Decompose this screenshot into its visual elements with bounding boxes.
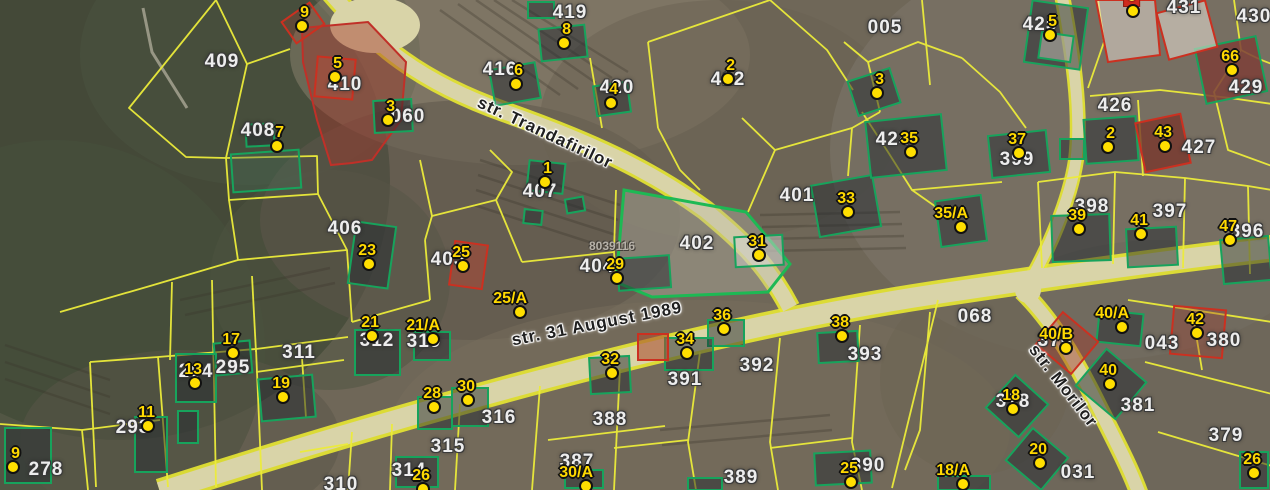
parcel-number-label: 409 xyxy=(205,51,240,73)
marker-dot-icon[interactable] xyxy=(904,145,918,159)
marker-dot-icon[interactable] xyxy=(835,329,849,343)
labels-layer: 4094194164204120054100604084074064054044… xyxy=(0,0,1270,490)
marker-dot-icon[interactable] xyxy=(680,346,694,360)
marker-dot-icon[interactable] xyxy=(328,70,342,84)
marker-dot-icon[interactable] xyxy=(721,72,735,86)
parcel-number-label: 278 xyxy=(29,459,64,481)
parcel-number-label: 388 xyxy=(593,409,628,431)
marker-dot-icon[interactable] xyxy=(226,346,240,360)
marker-dot-icon[interactable] xyxy=(1223,233,1237,247)
parcel-number-label: 426 xyxy=(1098,95,1133,117)
marker-dot-icon[interactable] xyxy=(1190,326,1204,340)
marker-dot-icon[interactable] xyxy=(381,113,395,127)
marker-dot-icon[interactable] xyxy=(141,419,155,433)
marker-dot-icon[interactable] xyxy=(188,376,202,390)
parcel-number-label: 060 xyxy=(391,106,426,128)
marker-dot-icon[interactable] xyxy=(841,205,855,219)
parcel-number-label: 401 xyxy=(780,185,815,207)
marker-dot-icon[interactable] xyxy=(954,220,968,234)
parcel-number-label: 043 xyxy=(1145,333,1180,355)
parcel-number-label: 431 xyxy=(1167,0,1202,19)
marker-dot-icon[interactable] xyxy=(557,36,571,50)
marker-dot-icon[interactable] xyxy=(1101,140,1115,154)
marker-dot-icon[interactable] xyxy=(1126,4,1140,18)
parcel-number-label: 429 xyxy=(1229,77,1264,99)
parcel-number-label: 315 xyxy=(431,436,466,458)
parcel-number-label: 393 xyxy=(848,344,883,366)
marker-dot-icon[interactable] xyxy=(270,139,284,153)
parcel-number-label: 402 xyxy=(680,233,715,255)
marker-dot-icon[interactable] xyxy=(1103,377,1117,391)
marker-dot-icon[interactable] xyxy=(1247,466,1261,480)
marker-dot-icon[interactable] xyxy=(461,393,475,407)
marker-dot-icon[interactable] xyxy=(1033,456,1047,470)
marker-dot-icon[interactable] xyxy=(509,77,523,91)
marker-dot-icon[interactable] xyxy=(579,479,593,490)
marker-dot-icon[interactable] xyxy=(513,305,527,319)
marker-dot-icon[interactable] xyxy=(426,332,440,346)
parcel-number-label: 381 xyxy=(1121,395,1156,417)
marker-dot-icon[interactable] xyxy=(1225,63,1239,77)
marker-dot-icon[interactable] xyxy=(870,86,884,100)
marker-dot-icon[interactable] xyxy=(1115,320,1129,334)
marker-dot-icon[interactable] xyxy=(365,329,379,343)
survey-number-label: 8039116 xyxy=(589,239,635,253)
marker-dot-icon[interactable] xyxy=(6,460,20,474)
marker-dot-icon[interactable] xyxy=(1043,28,1057,42)
marker-dot-icon[interactable] xyxy=(1134,227,1148,241)
marker-dot-icon[interactable] xyxy=(1072,222,1086,236)
marker-dot-icon[interactable] xyxy=(1059,341,1073,355)
marker-dot-icon[interactable] xyxy=(1158,139,1172,153)
parcel-number-label: 392 xyxy=(740,355,775,377)
parcel-number-label: 379 xyxy=(1209,425,1244,447)
marker-dot-icon[interactable] xyxy=(538,175,552,189)
parcel-number-label: 389 xyxy=(724,467,759,489)
parcel-number-label: 311 xyxy=(282,342,316,364)
street-name-label: str. 31 August 1989 xyxy=(510,298,684,351)
marker-dot-icon[interactable] xyxy=(1006,402,1020,416)
marker-dot-icon[interactable] xyxy=(844,475,858,489)
marker-dot-icon[interactable] xyxy=(362,257,376,271)
parcel-number-label: 397 xyxy=(1153,201,1188,223)
marker-dot-icon[interactable] xyxy=(276,390,290,404)
parcel-number-label: 408 xyxy=(241,120,276,142)
parcel-number-label: 295 xyxy=(216,357,251,379)
marker-dot-icon[interactable] xyxy=(605,366,619,380)
parcel-number-label: 005 xyxy=(868,17,903,39)
marker-dot-icon[interactable] xyxy=(1012,146,1026,160)
parcel-number-label: 031 xyxy=(1061,462,1096,484)
parcel-number-label: 380 xyxy=(1207,330,1242,352)
parcel-number-label: 310 xyxy=(324,474,359,490)
marker-dot-icon[interactable] xyxy=(416,482,430,490)
map-canvas[interactable]: 4094194164204120054100604084074064054044… xyxy=(0,0,1270,490)
marker-dot-icon[interactable] xyxy=(604,96,618,110)
parcel-number-label: 391 xyxy=(668,369,703,391)
marker-dot-icon[interactable] xyxy=(295,19,309,33)
marker-dot-icon[interactable] xyxy=(427,400,441,414)
parcel-number-label: 406 xyxy=(328,218,363,240)
marker-dot-icon[interactable] xyxy=(956,477,970,490)
marker-dot-icon[interactable] xyxy=(456,259,470,273)
parcel-number-label: 316 xyxy=(482,407,517,429)
marker-dot-icon[interactable] xyxy=(610,271,624,285)
marker-dot-icon[interactable] xyxy=(717,322,731,336)
marker-dot-icon[interactable] xyxy=(752,248,766,262)
parcel-number-label: 068 xyxy=(958,306,993,328)
parcel-number-label: 430 xyxy=(1237,6,1270,28)
parcel-number-label: 427 xyxy=(1182,137,1217,159)
